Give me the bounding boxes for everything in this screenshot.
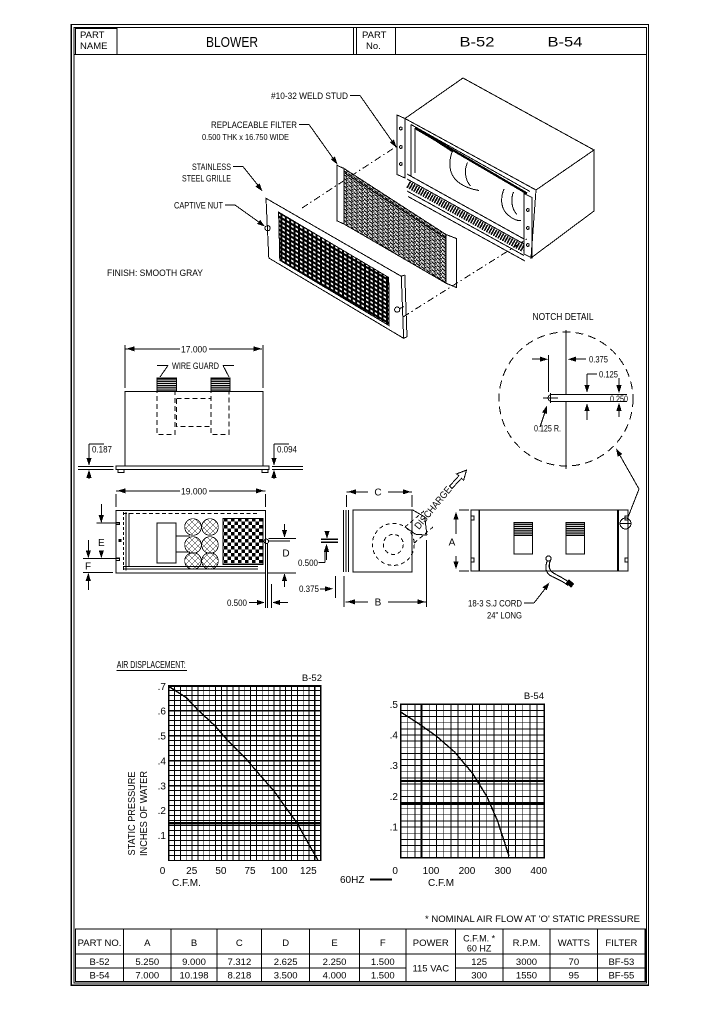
svg-text:B: B <box>375 597 382 608</box>
svg-text:B: B <box>191 938 197 949</box>
svg-text:A: A <box>144 938 151 949</box>
svg-text:7.312: 7.312 <box>227 957 251 968</box>
svg-text:200: 200 <box>459 866 476 877</box>
svg-text:B-52: B-52 <box>460 35 495 50</box>
svg-text:.4: .4 <box>158 756 167 767</box>
svg-text:C: C <box>236 938 243 949</box>
svg-text:.5: .5 <box>390 700 399 711</box>
svg-text:B-54: B-54 <box>524 691 544 702</box>
svg-text:No.: No. <box>366 41 381 52</box>
svg-text:1.500: 1.500 <box>371 971 395 982</box>
svg-text:100: 100 <box>423 866 440 877</box>
svg-text:B-52: B-52 <box>90 957 110 968</box>
svg-text:400: 400 <box>530 866 547 877</box>
svg-text:18-3 S.J CORD: 18-3 S.J CORD <box>468 599 522 610</box>
svg-text:100: 100 <box>271 866 288 877</box>
svg-text:17.000: 17.000 <box>181 344 207 355</box>
svg-text:.3: .3 <box>390 761 399 772</box>
svg-text:0: 0 <box>392 866 398 877</box>
svg-text:R.P.M.: R.P.M. <box>513 938 541 949</box>
svg-text:BLOWER: BLOWER <box>206 34 258 51</box>
svg-text:PART: PART <box>80 30 105 41</box>
svg-text:0.375: 0.375 <box>299 584 319 595</box>
svg-text:REPLACEABLE FILTER: REPLACEABLE FILTER <box>211 120 297 131</box>
svg-text:WATTS: WATTS <box>558 938 590 949</box>
svg-text:3000: 3000 <box>516 957 537 968</box>
svg-text:B-52: B-52 <box>302 673 322 684</box>
svg-text:3.500: 3.500 <box>274 971 298 982</box>
svg-text:NOTCH DETAIL: NOTCH DETAIL <box>533 312 594 323</box>
svg-text:BF-53: BF-53 <box>608 957 634 968</box>
svg-text:NAME: NAME <box>80 41 107 52</box>
svg-text:60HZ: 60HZ <box>340 875 364 886</box>
svg-text:C.F.M. *: C.F.M. * <box>463 934 495 944</box>
svg-text:0.500: 0.500 <box>227 598 247 609</box>
svg-text:8.218: 8.218 <box>227 971 251 982</box>
svg-text:.6: .6 <box>158 707 167 718</box>
svg-text:60 HZ: 60 HZ <box>467 944 492 954</box>
svg-text:25: 25 <box>186 866 198 877</box>
svg-text:* NOMINAL AIR FLOW AT 'O' STAT: * NOMINAL AIR FLOW AT 'O' STATIC PRESSUR… <box>425 914 640 925</box>
svg-text:D: D <box>282 549 289 560</box>
svg-text:INCHES OF WATER: INCHES OF WATER <box>139 771 150 856</box>
svg-text:A: A <box>449 538 456 549</box>
svg-text:50: 50 <box>215 866 227 877</box>
svg-text:75: 75 <box>244 866 256 877</box>
svg-text:115 VAC: 115 VAC <box>412 964 449 975</box>
svg-text:.4: .4 <box>390 731 399 742</box>
svg-text:19.000: 19.000 <box>181 486 207 497</box>
svg-text:FILTER: FILTER <box>605 938 637 949</box>
svg-text:BF-55: BF-55 <box>608 971 634 982</box>
svg-text:300: 300 <box>471 971 487 982</box>
svg-text:C.F.M.: C.F.M. <box>172 878 201 889</box>
svg-text:E: E <box>331 938 337 949</box>
svg-text:#10-32 WELD STUD: #10-32 WELD STUD <box>271 91 348 102</box>
svg-text:0.125: 0.125 <box>599 370 618 381</box>
svg-text:F: F <box>380 938 386 949</box>
svg-text:PART NO.: PART NO. <box>78 938 122 949</box>
svg-text:0.250: 0.250 <box>610 394 628 405</box>
svg-text:2.250: 2.250 <box>323 957 347 968</box>
svg-text:.2: .2 <box>390 792 399 803</box>
svg-text:0.500 THK x 16.750 WIDE: 0.500 THK x 16.750 WIDE <box>202 132 289 142</box>
svg-text:70: 70 <box>569 957 580 968</box>
svg-text:.7: .7 <box>158 682 167 693</box>
svg-text:.2: .2 <box>158 806 167 817</box>
svg-text:.5: .5 <box>158 732 167 743</box>
svg-text:WIRE GUARD: WIRE GUARD <box>172 361 219 372</box>
svg-text:B-54: B-54 <box>90 971 110 982</box>
svg-text:1.500: 1.500 <box>371 957 395 968</box>
svg-text:F: F <box>85 561 91 572</box>
svg-text:1550: 1550 <box>516 971 537 982</box>
svg-text:0.500: 0.500 <box>298 558 318 569</box>
svg-text:0.375: 0.375 <box>589 355 608 366</box>
svg-text:POWER: POWER <box>413 938 449 949</box>
svg-text:0.187: 0.187 <box>92 444 112 455</box>
svg-text:95: 95 <box>569 971 580 982</box>
svg-text:2.625: 2.625 <box>274 957 298 968</box>
svg-text:CAPTIVE NUT: CAPTIVE NUT <box>174 201 223 212</box>
svg-text:E: E <box>98 538 105 549</box>
svg-text:300: 300 <box>495 866 512 877</box>
svg-text:STATIC PRESSURE: STATIC PRESSURE <box>127 771 138 855</box>
svg-text:125: 125 <box>471 957 487 968</box>
svg-text:STEEL GRILLE: STEEL GRILLE <box>182 174 231 185</box>
svg-text:9.000: 9.000 <box>182 957 206 968</box>
svg-text:24" LONG: 24" LONG <box>487 611 522 622</box>
svg-text:PART: PART <box>362 30 387 41</box>
svg-text:.1: .1 <box>158 831 167 842</box>
svg-text:AIR DISPLACEMENT:: AIR DISPLACEMENT: <box>117 660 186 671</box>
svg-text:.1: .1 <box>390 823 399 834</box>
svg-text:4.000: 4.000 <box>323 971 347 982</box>
svg-text:.3: .3 <box>158 781 167 792</box>
svg-text:0.125 R.: 0.125 R. <box>534 424 561 435</box>
svg-text:D: D <box>282 938 289 949</box>
svg-text:0: 0 <box>160 866 166 877</box>
svg-text:7.000: 7.000 <box>135 971 159 982</box>
svg-text:125: 125 <box>300 866 317 877</box>
svg-text:STAINLESS: STAINLESS <box>192 162 231 173</box>
svg-text:10.198: 10.198 <box>179 971 208 982</box>
svg-text:FINISH: SMOOTH GRAY: FINISH: SMOOTH GRAY <box>107 268 204 279</box>
svg-text:C: C <box>374 487 381 498</box>
svg-text:B-54: B-54 <box>548 35 584 50</box>
svg-text:0.094: 0.094 <box>277 444 297 455</box>
svg-text:5.250: 5.250 <box>135 957 159 968</box>
svg-text:C.F.M: C.F.M <box>428 878 454 889</box>
